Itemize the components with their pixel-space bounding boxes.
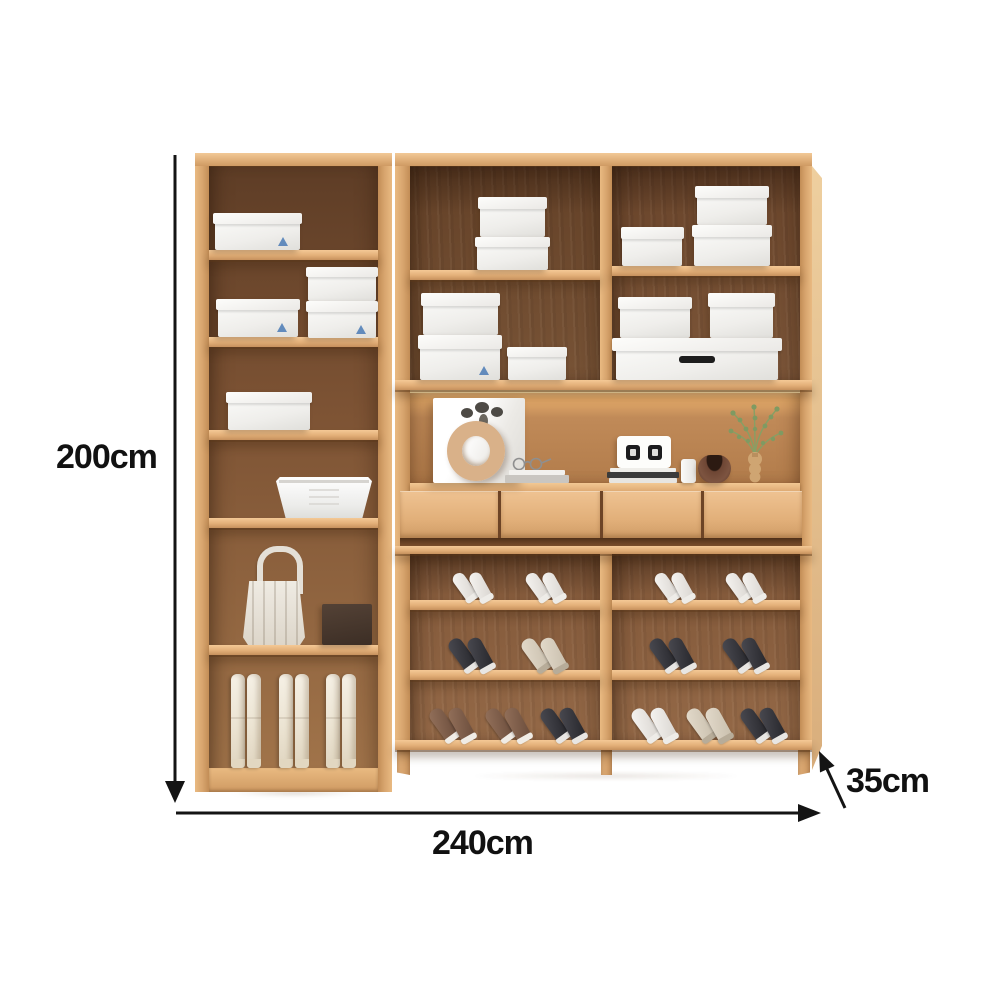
width-arrowhead [798, 804, 821, 822]
product-image: 200cm 240cm 35cm [0, 0, 1000, 1000]
depth-dimension-label: 35cm [846, 762, 929, 801]
depth-arrowhead [819, 751, 835, 773]
height-dimension-label: 200cm [56, 438, 157, 477]
depth-arrow [827, 769, 845, 808]
width-dimension-label: 240cm [432, 824, 533, 863]
height-arrowhead [165, 781, 185, 803]
